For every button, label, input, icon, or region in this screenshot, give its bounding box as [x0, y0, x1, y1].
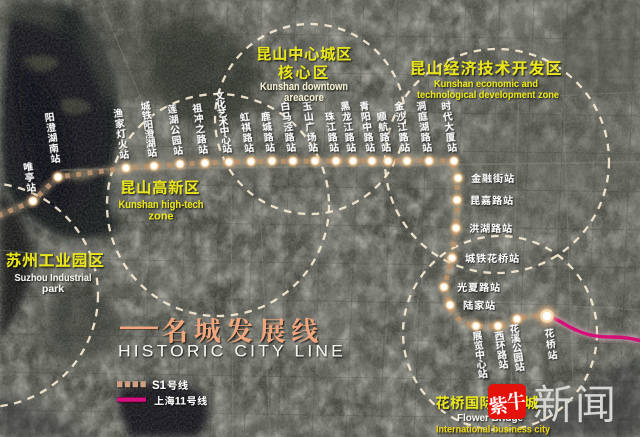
svg-text:zone: zone — [148, 211, 173, 223]
svg-text:technological development zone: technological development zone — [417, 90, 559, 101]
svg-text:park: park — [42, 283, 64, 295]
svg-text:Kunshan high-tech: Kunshan high-tech — [119, 199, 204, 211]
svg-text:S1: S1 — [152, 380, 167, 392]
svg-text:International business city: International business city — [436, 425, 550, 436]
svg-text:Kunshan economic and: Kunshan economic and — [434, 79, 538, 90]
svg-text:HISTORIC CITY LINE: HISTORIC CITY LINE — [118, 343, 346, 361]
svg-text:11: 11 — [175, 396, 186, 408]
svg-text:areacore: areacore — [284, 92, 324, 104]
